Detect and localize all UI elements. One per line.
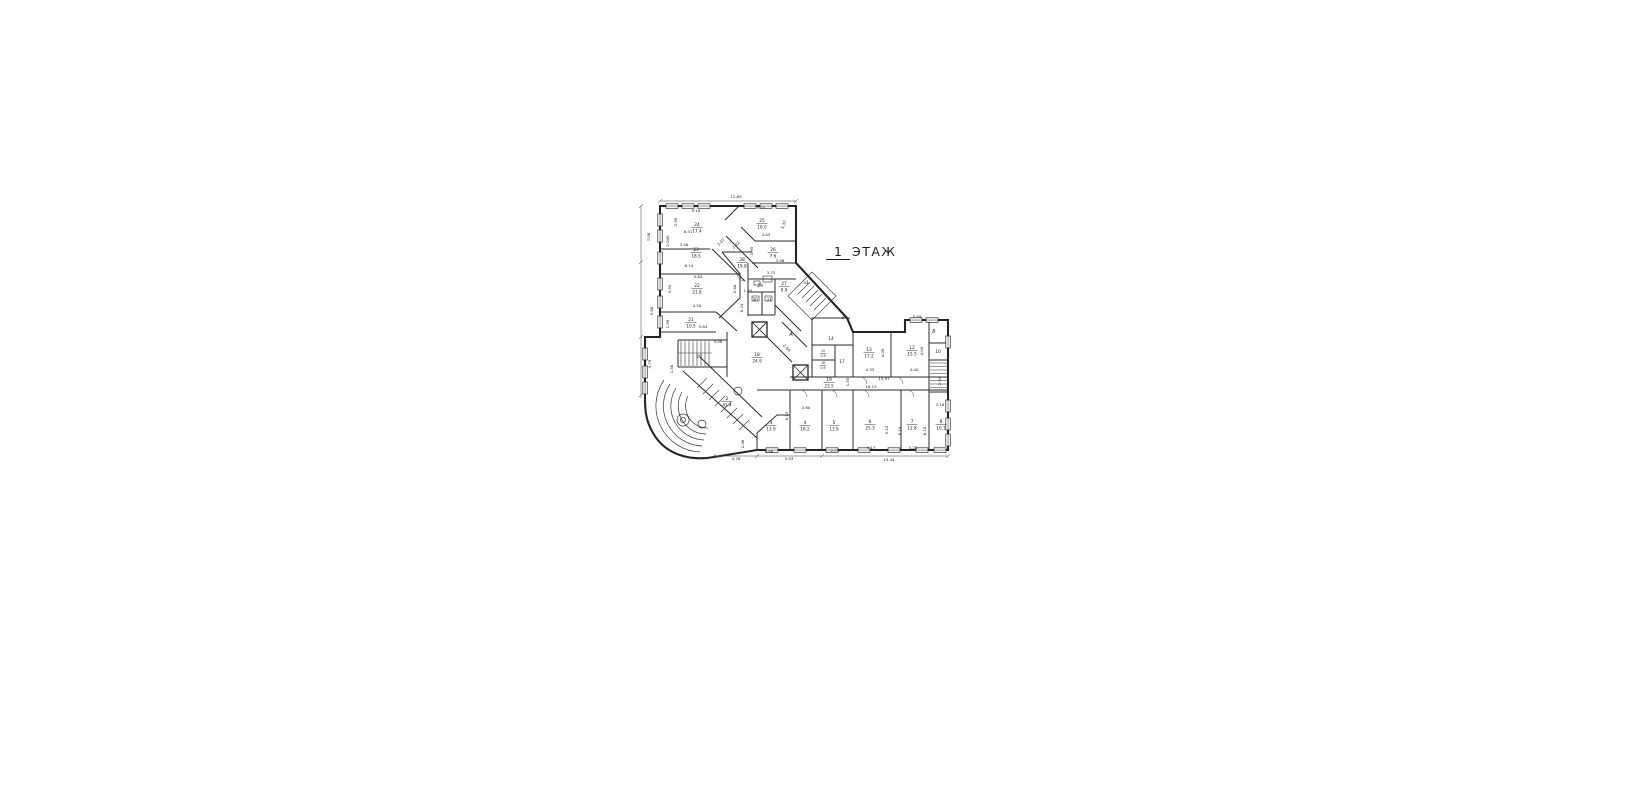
dimension-text: 2.945	[665, 235, 670, 247]
dimension-text: 4.00	[910, 367, 919, 372]
dimension-text: 6.10	[897, 426, 902, 435]
dimension-text: 4.76	[732, 456, 741, 461]
floor-plan-drawing: 1 ЭТАЖ 2417.42318.52221.82110.52518.0267…	[0, 0, 1633, 795]
room-16-number: 16	[821, 361, 825, 365]
room-7-area: 12.8	[907, 425, 917, 430]
room-3-number: 3	[770, 420, 773, 426]
room-18-area: 24.9	[752, 358, 762, 363]
room-24-area: 17.4	[692, 228, 702, 233]
label-17: 17	[839, 359, 845, 365]
label-а1: а1	[803, 280, 809, 286]
room-5-number: 5	[833, 420, 836, 426]
dimension-text: 1.99	[665, 319, 670, 328]
label-29: 29	[757, 283, 763, 289]
room-28-area: 19.8	[737, 263, 747, 268]
dimension-text: 13.44	[883, 457, 895, 462]
dimension-text: 6.74	[739, 303, 744, 312]
room-13-number: 13	[866, 347, 872, 353]
room-23-number: 23	[693, 247, 699, 253]
dimension-text: 7.08	[646, 232, 651, 241]
stair-20-treads	[678, 341, 712, 366]
room-25-area: 18.0	[757, 224, 767, 229]
room-7-number: 7	[911, 419, 914, 425]
dimension-text: 2.48	[732, 284, 737, 293]
dimension-text: 9.74	[757, 205, 766, 210]
room-12-number: 12	[909, 345, 915, 351]
dimension-text: 1.95	[749, 246, 754, 255]
room-21-number: 21	[688, 317, 694, 323]
dimension-text: 2.54	[937, 376, 942, 385]
room-25-number: 25	[759, 218, 765, 224]
room-4-area: 16.2	[800, 426, 810, 431]
label-20: 20	[696, 354, 702, 360]
elevator-shaft-1	[752, 322, 767, 337]
dimension-text: 5.98	[765, 449, 774, 454]
dimension-text: 2.95	[673, 217, 678, 226]
label-31: 31	[766, 297, 772, 303]
dimension-text: 4.79	[647, 359, 652, 368]
dimension-text: 5.84	[694, 274, 703, 279]
room-3-area: 13.9	[766, 426, 776, 431]
dimension-text: 2.68	[782, 343, 792, 353]
dimension-text: 5.93	[785, 456, 794, 461]
dimension-text: 3.73	[767, 270, 776, 275]
room-27-area: 8.9	[781, 287, 788, 292]
dimension-text: 12.69	[730, 194, 742, 199]
dimension-text: 6.14	[685, 263, 694, 268]
label-а: а	[842, 316, 845, 321]
dimension-text: 3.16	[936, 402, 945, 407]
dimension-text: 3.46	[680, 242, 689, 247]
dimension-text: 5.88	[649, 306, 654, 315]
room-12-area: 15.5	[907, 351, 917, 356]
dimension-text: 4.35	[866, 367, 875, 372]
dimension-text: 4.04	[919, 346, 924, 355]
room-26-number: 26	[770, 247, 776, 253]
label-Б: Б	[932, 329, 936, 335]
room-23-area: 18.5	[691, 253, 701, 258]
dimension-text: 2.06	[740, 439, 745, 448]
label-14: 14	[828, 336, 834, 342]
entrance-curved-steps	[656, 380, 708, 452]
dimension-text: 13.97	[878, 376, 890, 381]
scanned-floor-plan-page: 1 ЭТАЖ 2417.42318.52221.82110.52518.0267…	[0, 0, 1633, 795]
drawing-title: 1 ЭТАЖ	[826, 244, 896, 260]
dimension-text: 3.28	[909, 445, 918, 450]
title-floor-word: ЭТАЖ	[852, 244, 896, 259]
room-21-area: 10.5	[686, 323, 696, 328]
room-19-number: 19	[826, 377, 832, 383]
dimension-text: 8.51	[684, 229, 693, 234]
room-27-number: 27	[781, 281, 787, 287]
dimension-text: 5.12	[884, 425, 889, 434]
dimension-text: 5.08	[714, 339, 723, 344]
room-15-number: 15	[821, 349, 825, 353]
label-А: А	[788, 332, 793, 338]
elevator-shaft-2	[793, 365, 808, 380]
dimension-text: 5.37	[780, 219, 788, 229]
label-30: 30	[752, 297, 758, 303]
dimension-text: 4.17	[867, 445, 876, 450]
dimension-text: 5.84	[699, 324, 708, 329]
dimension-text: 6.23	[784, 411, 789, 420]
dimension-text: 5.92	[667, 284, 672, 293]
room-4-number: 4	[804, 420, 807, 426]
room-16-area: 0.9	[820, 366, 825, 370]
dimension-text: 1.55	[744, 288, 753, 293]
room-24-number: 24	[694, 222, 700, 228]
room-2-number: 2	[726, 396, 729, 402]
title-floor-number: 1	[834, 244, 842, 259]
room-13-area: 17.2	[864, 353, 874, 358]
dimension-text: 1.55	[845, 377, 850, 386]
room-6-area: 25.3	[865, 425, 875, 430]
dimension-text: 9.10	[692, 208, 701, 213]
dimension-text: 2.47	[716, 237, 726, 247]
room-22-area: 21.8	[692, 289, 702, 294]
room-15-area: 0.9	[820, 354, 825, 358]
dimension-text: 4.05	[880, 348, 885, 357]
room-2-area: 41.4	[722, 402, 732, 407]
dimension-text: 2.71	[831, 448, 840, 453]
room-8-number: 8	[940, 419, 943, 425]
dimension-text: 6.10	[922, 426, 927, 435]
dimension-text: 3.98	[776, 258, 785, 263]
dimension-text: 2.80	[802, 405, 811, 410]
dimension-text: 16.13	[865, 384, 877, 389]
dimension-text: 2.42	[731, 240, 741, 250]
room-5-area: 13.9	[829, 426, 839, 431]
room-6-number: 6	[869, 419, 872, 425]
dimension-text: 4.05	[762, 232, 771, 237]
room-18-number: 18	[754, 352, 760, 358]
dimension-text: 4.50	[693, 303, 702, 308]
room-8-area: 10.1	[936, 425, 946, 430]
label-10: 10	[935, 349, 941, 355]
dimension-text: 5.99	[913, 314, 922, 319]
room-22-number: 22	[694, 283, 700, 289]
columns	[677, 387, 742, 428]
room-19-area: 23.5	[824, 383, 834, 388]
room-28-number: 28	[739, 257, 745, 263]
dimension-text: 1.46	[669, 364, 674, 373]
